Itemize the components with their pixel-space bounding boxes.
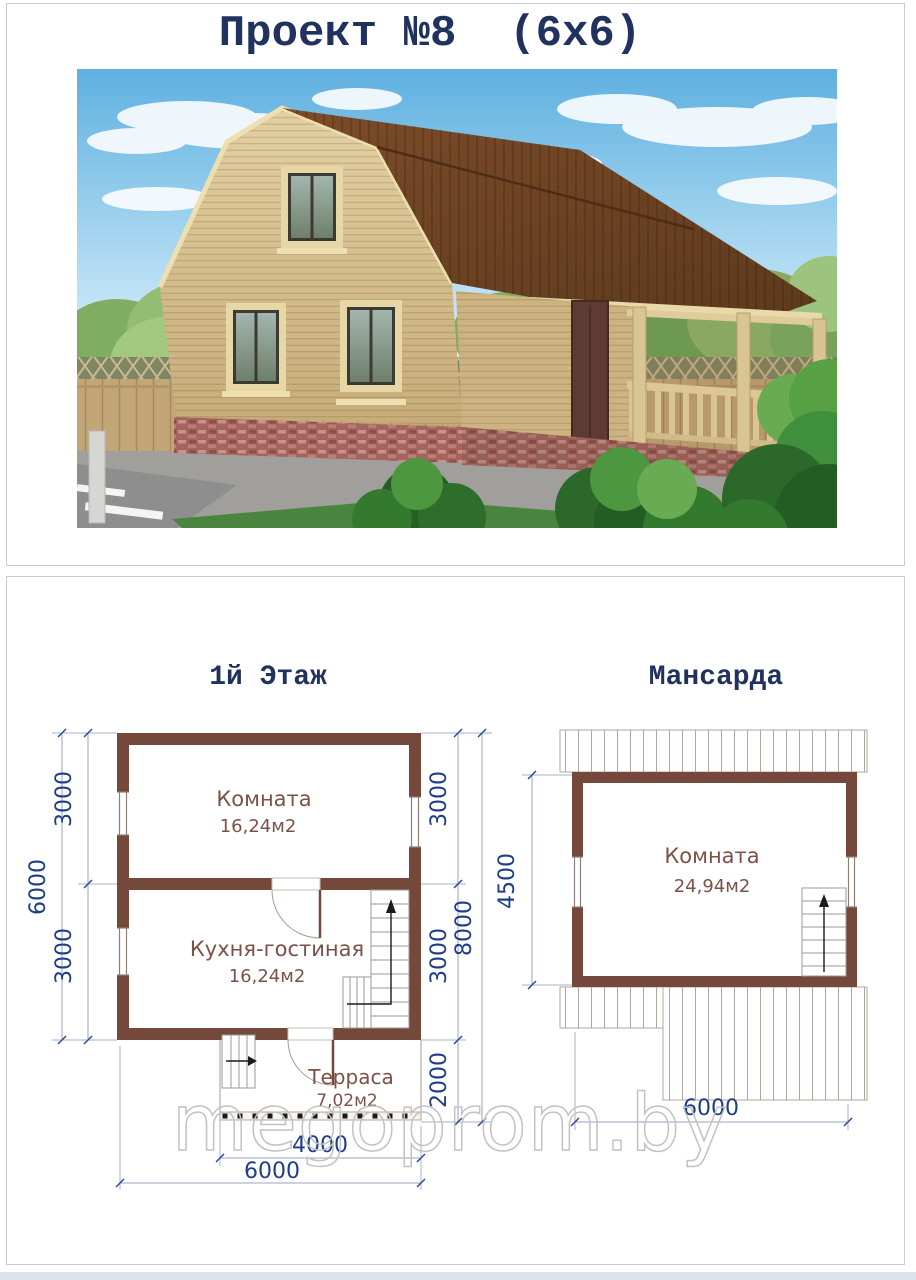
floor1-room2-area: 16,24м2 [229,966,306,987]
attic-window [277,166,347,254]
dim-right-upper: 3000 [427,771,452,827]
floor1-room2-name: Кухня-гостиная [190,937,364,961]
dim-left-lower: 3000 [52,928,77,984]
window-symbol [117,792,129,835]
porch-post-1 [633,307,646,453]
house-render-image [77,69,837,528]
dim-left-total: 6000 [26,859,51,915]
side-wall-siding [456,291,639,447]
dim-right-total: 8000 [452,900,477,956]
page-bottom-strip [0,1272,916,1280]
floor1-room1-area: 16,24м2 [220,816,297,837]
floor1-room1-name: Комната [216,787,311,811]
window-symbol [409,797,421,847]
watermark: megoprom.by [172,1079,728,1169]
floor1-heading: 1й Этаж [137,662,399,693]
window-symbol [846,857,857,907]
window-front-left [222,303,290,397]
attic-room-name: Комната [664,844,759,868]
attic-heading: Мансарда [585,662,847,693]
porch-post-2 [737,313,750,459]
window-symbol [572,857,583,907]
dim-left-upper: 3000 [52,771,77,827]
interior-door [272,878,320,938]
house-3d-render [77,69,837,528]
dim-right-lower: 3000 [427,928,452,984]
attic-room-area: 24,94м2 [674,876,751,897]
attic-plan: Комната 24,94м2 4500 6000 [495,730,867,1130]
floorplans-drawing: Комната 16,24м2 Кухня-гостиная 16,24м2 Т… [0,718,916,1268]
page-title: Проект №8 (6x6) [0,8,860,60]
entrance-door [572,301,608,441]
window-symbol [117,928,129,975]
window-front-right [336,300,406,405]
dim-attic-height: 4500 [495,853,520,909]
gate-post [89,431,105,523]
attic-staircase [802,888,846,976]
